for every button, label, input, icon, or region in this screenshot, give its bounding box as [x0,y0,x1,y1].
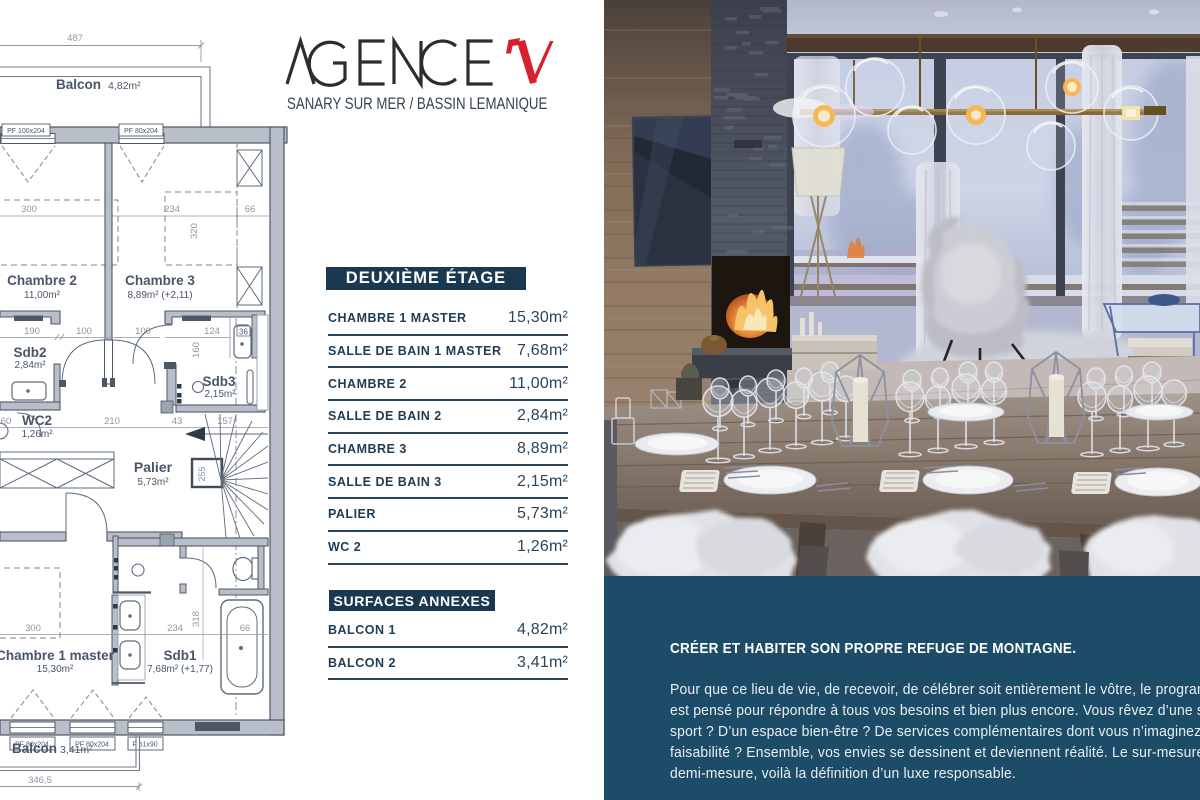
svg-text:Palier: Palier [134,459,173,475]
svg-text:Sdb2: Sdb2 [13,345,46,360]
svg-text:3,41m²: 3,41m² [60,744,93,756]
svg-text:2,15m²: 2,15m² [204,389,236,400]
svg-text:15,30m²: 15,30m² [37,664,74,675]
svg-text:Chambre 1 master: Chambre 1 master [0,648,115,663]
svg-text:PF 100x204: PF 100x204 [7,128,45,135]
svg-text:300: 300 [21,204,37,215]
svg-text:234: 234 [167,623,183,634]
svg-text:210: 210 [104,416,120,427]
svg-text:PF 80x204: PF 80x204 [124,128,158,135]
svg-text:60: 60 [1,416,12,427]
svg-text:320: 320 [189,223,200,239]
svg-text:11,00m²: 11,00m² [24,290,61,301]
svg-text:8,89m² (+2,11): 8,89m² (+2,11) [127,290,192,301]
svg-text:234: 234 [164,204,180,215]
svg-text:Sdb1: Sdb1 [163,648,196,663]
svg-text:7,68m² (+1,77): 7,68m² (+1,77) [147,664,213,675]
svg-text:36: 36 [239,328,248,337]
svg-text:100: 100 [135,326,151,337]
svg-text:1,26m²: 1,26m² [21,429,53,440]
svg-text:157: 157 [217,416,233,427]
svg-text:100: 100 [76,326,92,337]
svg-text:487: 487 [67,33,83,44]
svg-text:Balcon: Balcon [56,77,101,92]
svg-text:43: 43 [172,416,183,427]
svg-text:66: 66 [240,623,251,634]
svg-text:66: 66 [245,204,256,215]
svg-text:Chambre 3: Chambre 3 [125,273,195,288]
svg-text:346,5: 346,5 [28,775,52,786]
svg-text:Sdb3: Sdb3 [202,374,235,389]
svg-text:4,82m²: 4,82m² [108,80,141,92]
svg-text:2,84m²: 2,84m² [14,360,46,371]
svg-text:Balcon: Balcon [12,741,57,756]
svg-text:160: 160 [191,342,202,358]
svg-text:190: 190 [24,326,40,337]
svg-text:124: 124 [204,326,220,337]
svg-text:300: 300 [25,623,41,634]
svg-text:318: 318 [191,611,202,627]
svg-text:Chambre 2: Chambre 2 [7,273,77,288]
svg-text:255: 255 [197,466,207,481]
svg-text:5,73m²: 5,73m² [137,477,169,488]
